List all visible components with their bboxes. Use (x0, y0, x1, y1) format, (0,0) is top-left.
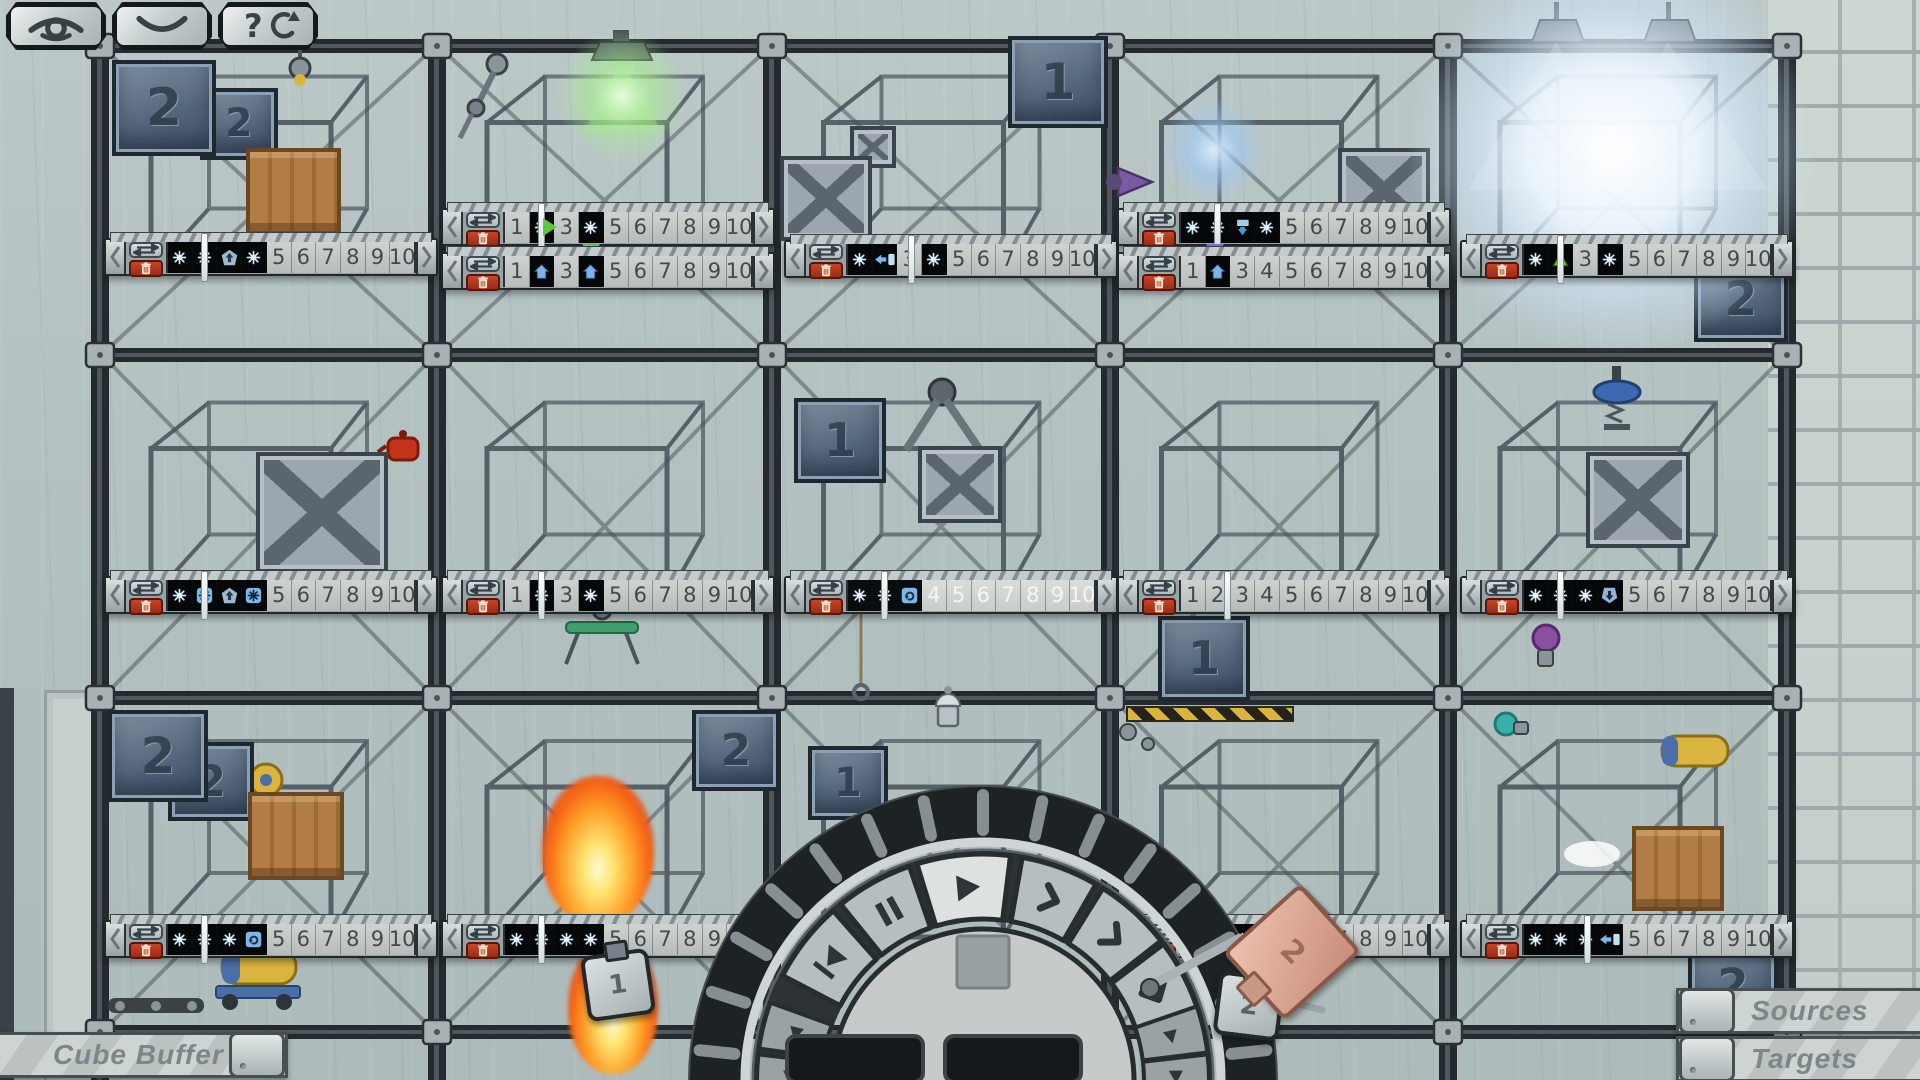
tag-label: 1 (607, 969, 629, 1001)
door-frame (44, 690, 102, 1080)
slot-number[interactable]: 7 (653, 255, 678, 287)
slot-number[interactable]: 4 (1255, 255, 1280, 287)
cube-number: 2 (721, 725, 752, 776)
timeline-r2c3[interactable]: 45678910 (784, 576, 1118, 614)
gripper-arm (906, 379, 980, 450)
slot-number[interactable]: 5 (947, 243, 972, 275)
swap-arrows-button[interactable] (1485, 580, 1519, 596)
slot-activation-flash-icon[interactable] (1524, 923, 1549, 955)
slot-number[interactable]: 9 (1379, 255, 1404, 287)
slot-number[interactable]: 10 (727, 579, 751, 611)
slot-activation-flash-blue-icon[interactable] (242, 579, 267, 611)
numbered-cube[interactable]: 1 (794, 398, 886, 483)
swap-arrows-button[interactable] (809, 580, 843, 596)
slot-number[interactable]: 5 (604, 579, 629, 611)
trash-button[interactable] (809, 598, 843, 615)
slot-activation-flash-icon[interactable] (579, 923, 604, 955)
sources-label: Sources (1751, 995, 1869, 1027)
slot-number[interactable]: 4 (922, 579, 947, 611)
playhead-cursor[interactable] (538, 915, 545, 964)
slot-number[interactable]: 9 (366, 923, 391, 955)
slot-number[interactable]: 4 (1255, 579, 1280, 611)
slot-number[interactable]: 8 (1354, 579, 1379, 611)
trash-button[interactable] (1142, 230, 1176, 247)
playhead-cursor[interactable] (538, 571, 545, 620)
timeline-left-cap (443, 210, 463, 244)
slot-number[interactable]: 7 (1672, 243, 1697, 275)
slot-number[interactable]: 8 (341, 923, 366, 955)
timeline-left-cap (786, 242, 806, 276)
playhead-cursor[interactable] (1584, 915, 1591, 964)
slot-number[interactable]: 6 (972, 579, 997, 611)
slot-return-home-icon[interactable] (579, 255, 604, 287)
timeline-r1c2a[interactable]: 135678910 (441, 208, 775, 246)
slot-number[interactable]: 8 (1697, 243, 1722, 275)
timeline-right-cap (753, 210, 773, 244)
timeline-left-cap (1119, 254, 1139, 288)
numbered-cube[interactable]: 2 (112, 60, 216, 156)
timeline-left-cap (786, 578, 806, 612)
timeline-left-cap (106, 578, 126, 612)
trash-button[interactable] (466, 274, 500, 291)
slot-number[interactable]: 3 (1230, 255, 1255, 287)
slot-number[interactable]: 5 (604, 255, 629, 287)
slot-lift-up-icon[interactable] (217, 579, 242, 611)
swap-arrows-button[interactable] (466, 212, 500, 228)
sources-banner[interactable]: Sources (1676, 988, 1920, 1034)
slot-number[interactable]: 8 (1354, 255, 1379, 287)
slot-number[interactable]: 10 (1746, 579, 1770, 611)
wheel-slot[interactable] (945, 1036, 1081, 1080)
slot-number[interactable]: 7 (1329, 255, 1354, 287)
slot-number[interactable]: 10 (1070, 579, 1094, 611)
banner-latch (1679, 988, 1735, 1034)
hint-restart-button[interactable]: ? (218, 2, 318, 50)
eye-open-button[interactable] (6, 2, 106, 50)
slot-number[interactable]: 8 (678, 255, 703, 287)
slot-number[interactable]: 1 (1181, 579, 1206, 611)
slot-activation-flash-icon[interactable] (168, 923, 193, 955)
timeline-right-cap (753, 578, 773, 612)
timeline-left-cap (443, 922, 463, 956)
timeline-right-cap (416, 240, 436, 274)
slot-number[interactable]: 7 (1329, 579, 1354, 611)
slot-number[interactable]: 7 (1672, 923, 1697, 955)
eye-open-icon (25, 8, 87, 44)
slot-activation-flash-icon[interactable] (168, 241, 193, 273)
slot-drop-down-icon[interactable] (1598, 579, 1623, 611)
slot-number[interactable]: 9 (1722, 923, 1747, 955)
svg-text:?: ? (244, 7, 263, 45)
cube-number: 1 (1188, 631, 1220, 685)
wall-beam (0, 688, 14, 1080)
cube-number: 2 (225, 101, 252, 146)
trash-button[interactable] (129, 260, 163, 277)
purple-horn (1106, 168, 1152, 196)
timeline-slots: 5678910 (1522, 923, 1772, 955)
timeline-right-cap (753, 254, 773, 288)
timeline-r2c5[interactable]: 5678910 (1460, 576, 1794, 614)
trash-button[interactable] (1142, 598, 1176, 615)
lamp-beam (1588, 42, 1768, 190)
slot-number[interactable]: 5 (267, 923, 292, 955)
slot-return-home-icon[interactable] (1206, 255, 1231, 287)
slot-number[interactable]: 9 (1379, 579, 1404, 611)
cube-number: 1 (1041, 53, 1076, 111)
brick-wall (1768, 0, 1920, 1080)
conveyor (108, 998, 204, 1013)
slot-exit-left-icon[interactable] (1598, 923, 1623, 955)
ceiling-lamp (1644, 2, 1696, 42)
hazard-strip (1126, 706, 1294, 722)
slot-number[interactable]: 5 (1623, 579, 1648, 611)
slot-number[interactable]: 6 (292, 241, 317, 273)
timeline-left-cap (1119, 210, 1139, 244)
trash-button[interactable] (1142, 274, 1176, 291)
slot-rotate-cube-icon[interactable] (242, 923, 267, 955)
slot-number[interactable]: 10 (1746, 923, 1770, 955)
timeline-r1c4a[interactable]: 5678910 (1117, 208, 1451, 246)
timeline-right-cap (1772, 578, 1792, 612)
slot-number[interactable]: 1 (505, 255, 530, 287)
timeline-right-cap (1429, 210, 1449, 244)
play-button[interactable] (917, 854, 1011, 926)
timeline-r1c1[interactable]: 5678910 (104, 238, 438, 276)
spray-puff (1564, 841, 1620, 867)
playhead-cursor[interactable] (1224, 571, 1231, 620)
cube-buffer-banner[interactable]: Cube Buffer (0, 1032, 288, 1078)
banner-latch (1679, 1036, 1735, 1080)
trash-button[interactable] (1485, 598, 1519, 615)
playback-wheel[interactable] (683, 778, 1283, 1080)
playhead-cursor[interactable] (908, 235, 915, 284)
slot-activation-flash-icon[interactable] (242, 241, 267, 273)
swap-arrows-button[interactable] (466, 256, 500, 272)
slot-activation-flash-icon[interactable] (848, 579, 873, 611)
slot-activation-flash-icon[interactable] (1598, 243, 1623, 275)
slot-number[interactable]: 7 (316, 579, 341, 611)
timeline-slots: 12345678910 (1179, 579, 1429, 611)
slot-number[interactable]: 10 (727, 211, 751, 243)
plunger (1594, 366, 1640, 430)
playhead-cursor[interactable] (1557, 571, 1564, 620)
barrel-cart (216, 950, 300, 1010)
trash-button[interactable] (1485, 942, 1519, 959)
timeline-slots: 135678910 (503, 255, 753, 287)
green-glow (556, 30, 688, 162)
slot-number[interactable]: 5 (1623, 923, 1648, 955)
slot-number[interactable]: 5 (267, 579, 292, 611)
slot-number[interactable]: 6 (292, 579, 317, 611)
slot-number[interactable]: 9 (1722, 243, 1747, 275)
slot-activation-flash-icon[interactable] (1255, 211, 1280, 243)
white-bot (936, 686, 960, 726)
slot-number[interactable]: 6 (629, 255, 654, 287)
slot-number[interactable]: 3 (554, 211, 579, 243)
crossed-crate[interactable] (918, 446, 1002, 523)
slot-number[interactable]: 9 (703, 255, 728, 287)
slot-number[interactable]: 6 (629, 579, 654, 611)
slot-number[interactable]: 7 (653, 211, 678, 243)
timeline-r1c3[interactable]: 35678910 (784, 240, 1118, 278)
slot-number[interactable]: 9 (1722, 579, 1747, 611)
slot-number[interactable]: 8 (341, 579, 366, 611)
slot-activation-flash-icon[interactable] (1181, 211, 1206, 243)
timeline-right-cap (416, 922, 436, 956)
stop-square-icon (957, 936, 1009, 988)
numbered-cube[interactable]: 1 (1008, 36, 1108, 128)
slot-activation-flash-icon[interactable] (168, 579, 193, 611)
slot-number[interactable]: 7 (996, 579, 1021, 611)
slot-number[interactable]: 10 (1403, 255, 1427, 287)
green-lamp (592, 30, 652, 60)
numbered-cube[interactable]: 2 (108, 710, 208, 802)
slot-drop-crate-icon[interactable] (1230, 211, 1255, 243)
slot-activation-flash-icon[interactable] (1524, 579, 1549, 611)
eye-closed-button[interactable] (112, 2, 212, 50)
slot-number[interactable]: 10 (390, 241, 414, 273)
slot-number[interactable]: 8 (1021, 243, 1046, 275)
slot-number[interactable]: 5 (1280, 255, 1305, 287)
slot-number[interactable]: 7 (316, 923, 341, 955)
timeline-r1c2b[interactable]: 135678910 (441, 252, 775, 290)
slot-number[interactable]: 6 (292, 923, 317, 955)
slot-lift-up-icon[interactable] (217, 241, 242, 273)
side-barrel (1662, 736, 1728, 766)
lamp-beam (1468, 42, 1646, 190)
crossed-crate[interactable] (780, 156, 872, 241)
slot-activation-flash-icon[interactable] (579, 579, 604, 611)
timeline-left-cap (106, 922, 126, 956)
crossed-crate[interactable] (256, 452, 388, 573)
slot-number[interactable]: 5 (1280, 211, 1305, 243)
trash-button[interactable] (809, 262, 843, 279)
balloon-bot (1533, 625, 1559, 666)
slot-rotate-cube-icon[interactable] (897, 579, 922, 611)
timeline-r1c4b[interactable]: 1345678910 (1117, 252, 1451, 290)
swap-arrows-button[interactable] (129, 242, 163, 258)
cube-buffer-label: Cube Buffer (53, 1039, 224, 1071)
slot-number[interactable]: 5 (1280, 579, 1305, 611)
robot-arm (460, 54, 507, 138)
slot-number[interactable]: 1 (1181, 255, 1206, 287)
swap-arrows-button[interactable] (129, 924, 163, 940)
slot-number[interactable]: 7 (653, 579, 678, 611)
slot-activation-flash-icon[interactable] (505, 923, 530, 955)
slot-number[interactable]: 8 (1697, 579, 1722, 611)
timeline-slots: 1345678910 (1179, 255, 1429, 287)
timeline-right-cap (1096, 578, 1116, 612)
slot-number[interactable]: 6 (1305, 579, 1330, 611)
slot-number[interactable]: 5 (267, 241, 292, 273)
timeline-left-cap (443, 254, 463, 288)
slot-number[interactable]: 5 (947, 579, 972, 611)
swap-arrows-button[interactable] (466, 924, 500, 940)
eye-closed-icon (131, 8, 193, 44)
swap-arrows-button[interactable] (1485, 244, 1519, 260)
slot-number[interactable]: 9 (1046, 243, 1071, 275)
wheel-tag-1[interactable]: 1 (580, 948, 657, 1023)
slot-number[interactable]: 5 (1623, 243, 1648, 275)
timeline-right-cap (1429, 578, 1449, 612)
timeline-right-cap (1429, 254, 1449, 288)
slot-number[interactable]: 9 (1046, 579, 1071, 611)
slot-number[interactable]: 9 (1379, 923, 1404, 955)
slot-number[interactable]: 6 (1648, 923, 1673, 955)
playhead-cursor[interactable] (201, 571, 208, 620)
wooden-crate[interactable] (248, 792, 344, 880)
timeline-r2c2[interactable]: 135678910 (441, 576, 775, 614)
slot-number[interactable]: 3 (1573, 243, 1598, 275)
wheel-slot[interactable] (787, 1036, 923, 1080)
slot-activation-flash-icon[interactable] (554, 923, 579, 955)
slot-number[interactable]: 1 (505, 579, 530, 611)
slot-number[interactable]: 9 (366, 241, 391, 273)
cube-number: 2 (1725, 272, 1758, 327)
timeline-right-cap (1772, 922, 1792, 956)
timeline-r2c1[interactable]: 5678910 (104, 576, 438, 614)
swap-arrows-button[interactable] (1485, 924, 1519, 940)
swap-arrows-button[interactable] (1142, 580, 1176, 596)
slot-number[interactable]: 10 (390, 579, 414, 611)
targets-banner[interactable]: Targets (1676, 1036, 1920, 1080)
slot-activation-flash-icon[interactable] (1549, 923, 1574, 955)
slot-number[interactable]: 6 (972, 243, 997, 275)
slot-activation-flash-icon[interactable] (848, 243, 873, 275)
slot-number[interactable]: 7 (316, 241, 341, 273)
slot-number[interactable]: 7 (1329, 211, 1354, 243)
slot-number[interactable]: 6 (629, 211, 654, 243)
slot-number[interactable]: 3 (554, 255, 579, 287)
trash-button[interactable] (129, 942, 163, 959)
slot-number[interactable]: 7 (653, 923, 678, 955)
fire-effect (542, 776, 654, 926)
wooden-crate[interactable] (246, 148, 341, 235)
playhead-cursor[interactable] (881, 571, 888, 620)
crossed-crate[interactable] (1586, 452, 1690, 548)
slot-number[interactable]: 10 (390, 923, 414, 955)
cube-number: 2 (141, 727, 176, 785)
ceiling-lamp (1532, 2, 1584, 42)
slot-activation-flash-icon[interactable] (1524, 243, 1549, 275)
targets-label: Targets (1751, 1043, 1858, 1075)
slot-number[interactable]: 7 (1672, 579, 1697, 611)
trash-button[interactable] (466, 230, 500, 247)
slot-number[interactable]: 1 (505, 211, 530, 243)
slot-number[interactable]: 10 (1403, 923, 1427, 955)
slot-number[interactable]: 7 (996, 243, 1021, 275)
timeline-right-cap (1096, 242, 1116, 276)
timeline-right-cap (1429, 922, 1449, 956)
slot-number[interactable]: 6 (1648, 243, 1673, 275)
hint-restart-icon: ? (236, 7, 300, 45)
playhead-cursor[interactable] (1557, 235, 1564, 284)
swap-arrows-button[interactable] (1142, 256, 1176, 272)
playhead-cursor[interactable] (201, 233, 208, 282)
slot-number[interactable]: 9 (1379, 211, 1404, 243)
tiny-bots (1120, 724, 1154, 750)
timeline-left-cap (1119, 578, 1139, 612)
slot-number[interactable]: 10 (1403, 211, 1427, 243)
slot-activation-flash-icon[interactable] (922, 243, 947, 275)
slot-number[interactable]: 3 (554, 579, 579, 611)
timeline-r3c5[interactable]: 5678910 (1460, 920, 1794, 958)
timeline-left-cap (1462, 242, 1482, 276)
timeline-left-cap (1462, 578, 1482, 612)
teal-bot (1495, 713, 1528, 735)
timeline-r1c5[interactable]: 35678910 (1460, 240, 1794, 278)
trash-button[interactable] (129, 598, 163, 615)
timeline-left-cap (1462, 922, 1482, 956)
timeline-left-cap (106, 240, 126, 274)
slot-number[interactable]: 10 (1070, 243, 1094, 275)
marker-right-green (543, 218, 557, 236)
swap-arrows-button[interactable] (1142, 212, 1176, 228)
slot-number[interactable]: 3 (1230, 579, 1255, 611)
banner-latch (229, 1032, 285, 1078)
slot-number[interactable]: 9 (366, 579, 391, 611)
game-stage: ? 1 2 2 Cube Buffer Sources Targets 2212… (0, 0, 1920, 1080)
slot-activation-flash-icon[interactable] (1573, 579, 1598, 611)
slot-activation-flash-icon[interactable] (579, 211, 604, 243)
trash-button[interactable] (1485, 262, 1519, 279)
wooden-crate[interactable] (1632, 826, 1724, 911)
slot-number[interactable]: 8 (678, 579, 703, 611)
slot-number[interactable]: 8 (1697, 923, 1722, 955)
slot-number[interactable]: 10 (1746, 243, 1770, 275)
slot-number[interactable]: 10 (1403, 579, 1427, 611)
timeline-r3c1[interactable]: 5678910 (104, 920, 438, 958)
timeline-r2c4[interactable]: 12345678910 (1117, 576, 1451, 614)
cube-number: 1 (824, 413, 856, 467)
slot-move-left-icon[interactable] (873, 243, 898, 275)
slot-number[interactable]: 8 (1354, 211, 1379, 243)
timeline-slots: 35678910 (846, 243, 1096, 275)
slot-number[interactable]: 6 (1305, 255, 1330, 287)
playhead-cursor[interactable] (201, 915, 208, 964)
blue-glow (1162, 98, 1266, 202)
trash-button[interactable] (466, 598, 500, 615)
slot-number[interactable]: 10 (727, 255, 751, 287)
slot-number[interactable]: 9 (703, 579, 728, 611)
slot-number[interactable]: 6 (1305, 211, 1330, 243)
timeline-left-cap (443, 578, 463, 612)
swap-arrows-button[interactable] (129, 580, 163, 596)
cube-number: 2 (146, 78, 182, 138)
green-beam (584, 60, 662, 132)
slot-number[interactable]: 9 (703, 211, 728, 243)
slot-number[interactable]: 8 (341, 241, 366, 273)
slot-number[interactable]: 6 (1648, 579, 1673, 611)
pink-tag-label: 2 (1272, 932, 1311, 972)
slot-activation-flash-icon[interactable] (217, 923, 242, 955)
swap-arrows-button[interactable] (809, 244, 843, 260)
timeline-right-cap (416, 578, 436, 612)
slot-number[interactable]: 5 (604, 211, 629, 243)
slot-number[interactable]: 8 (678, 211, 703, 243)
numbered-cube[interactable]: 1 (1158, 616, 1250, 701)
slot-return-home-icon[interactable] (530, 255, 555, 287)
swap-arrows-button[interactable] (466, 580, 500, 596)
timeline-right-cap (1772, 242, 1792, 276)
slot-number[interactable]: 8 (1021, 579, 1046, 611)
trash-button[interactable] (466, 942, 500, 959)
